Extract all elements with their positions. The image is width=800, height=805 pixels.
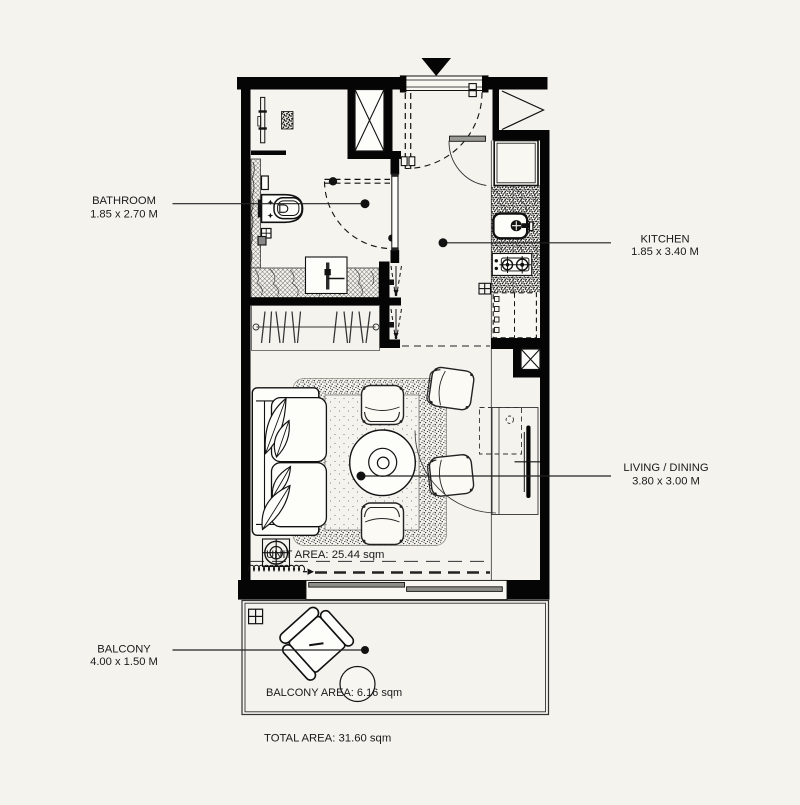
svg-text:KITCHEN: KITCHEN [640, 234, 689, 246]
svg-text:UNIT AREA: 25.44 sqm: UNIT AREA: 25.44 sqm [266, 549, 384, 561]
svg-text:LIVING / DINING: LIVING / DINING [623, 462, 708, 474]
svg-text:BALCONY: BALCONY [97, 644, 151, 656]
svg-text:1.85 x 3.40 M: 1.85 x 3.40 M [631, 246, 699, 258]
svg-text:BALCONY AREA: 6.16 sqm: BALCONY AREA: 6.16 sqm [266, 687, 402, 699]
svg-text:BATHROOM: BATHROOM [92, 195, 156, 207]
svg-text:4.00 x 1.50 M: 4.00 x 1.50 M [90, 656, 158, 668]
svg-text:1.85 x 2.70 M: 1.85 x 2.70 M [90, 209, 158, 221]
svg-text:TOTAL AREA: 31.60 sqm: TOTAL AREA: 31.60 sqm [264, 733, 391, 745]
svg-text:3.80 x 3.00 M: 3.80 x 3.00 M [632, 476, 700, 488]
